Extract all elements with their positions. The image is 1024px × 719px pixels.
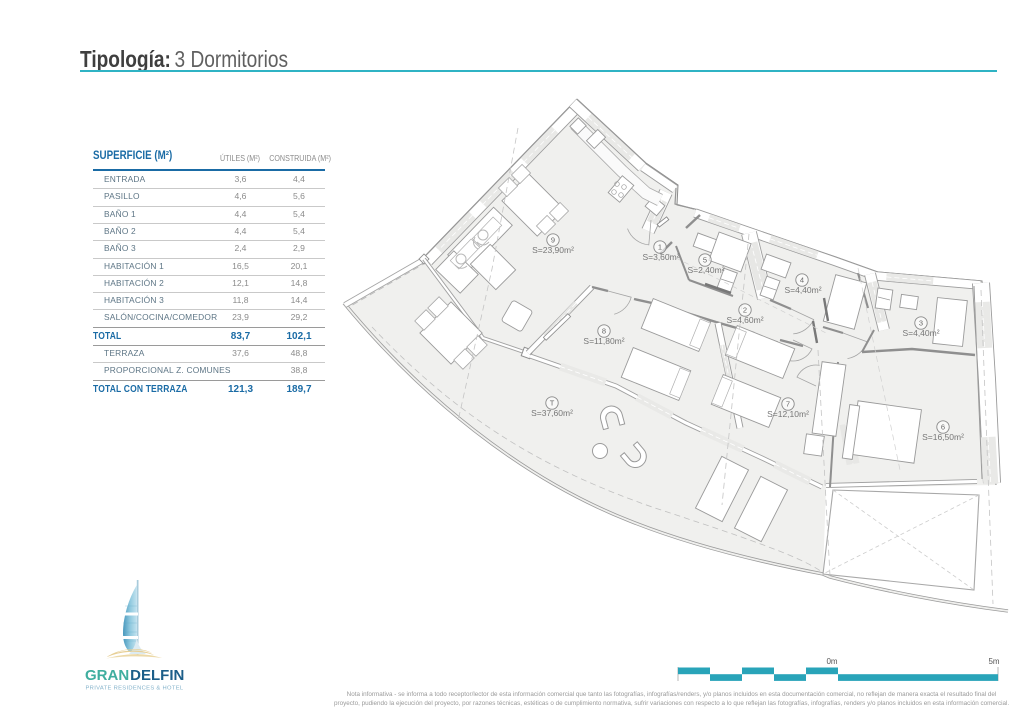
svg-text:3: 3 [919, 319, 923, 328]
svg-text:1: 1 [658, 243, 662, 252]
svg-text:5m: 5m [988, 657, 999, 666]
svg-text:S=16,50m²: S=16,50m² [922, 432, 964, 442]
svg-text:S=37,60m²: S=37,60m² [531, 408, 573, 418]
svg-text:7: 7 [786, 400, 790, 409]
svg-text:S=12,10m²: S=12,10m² [767, 409, 809, 419]
svg-text:S=3,60m²: S=3,60m² [642, 252, 679, 262]
svg-text:S=4,40m²: S=4,40m² [902, 328, 939, 338]
svg-text:6: 6 [941, 423, 945, 432]
svg-text:S=23,90m²: S=23,90m² [532, 245, 574, 255]
svg-text:9: 9 [551, 236, 555, 245]
svg-text:T: T [550, 399, 555, 408]
svg-text:S=4,40m²: S=4,40m² [784, 285, 821, 295]
svg-text:S=4,60m²: S=4,60m² [726, 315, 763, 325]
svg-text:8: 8 [602, 327, 606, 336]
svg-text:5: 5 [703, 256, 707, 265]
svg-text:GRANDELFIN: GRANDELFIN [85, 667, 184, 684]
svg-text:2: 2 [743, 306, 747, 315]
svg-text:0m: 0m [826, 657, 837, 666]
svg-text:4: 4 [800, 276, 804, 285]
svg-text:S=11,80m²: S=11,80m² [583, 336, 624, 346]
svg-text:S=2,40m²: S=2,40m² [687, 265, 724, 275]
svg-text:PRIVATE RESIDENCES & HOTEL: PRIVATE RESIDENCES & HOTEL [86, 686, 184, 692]
